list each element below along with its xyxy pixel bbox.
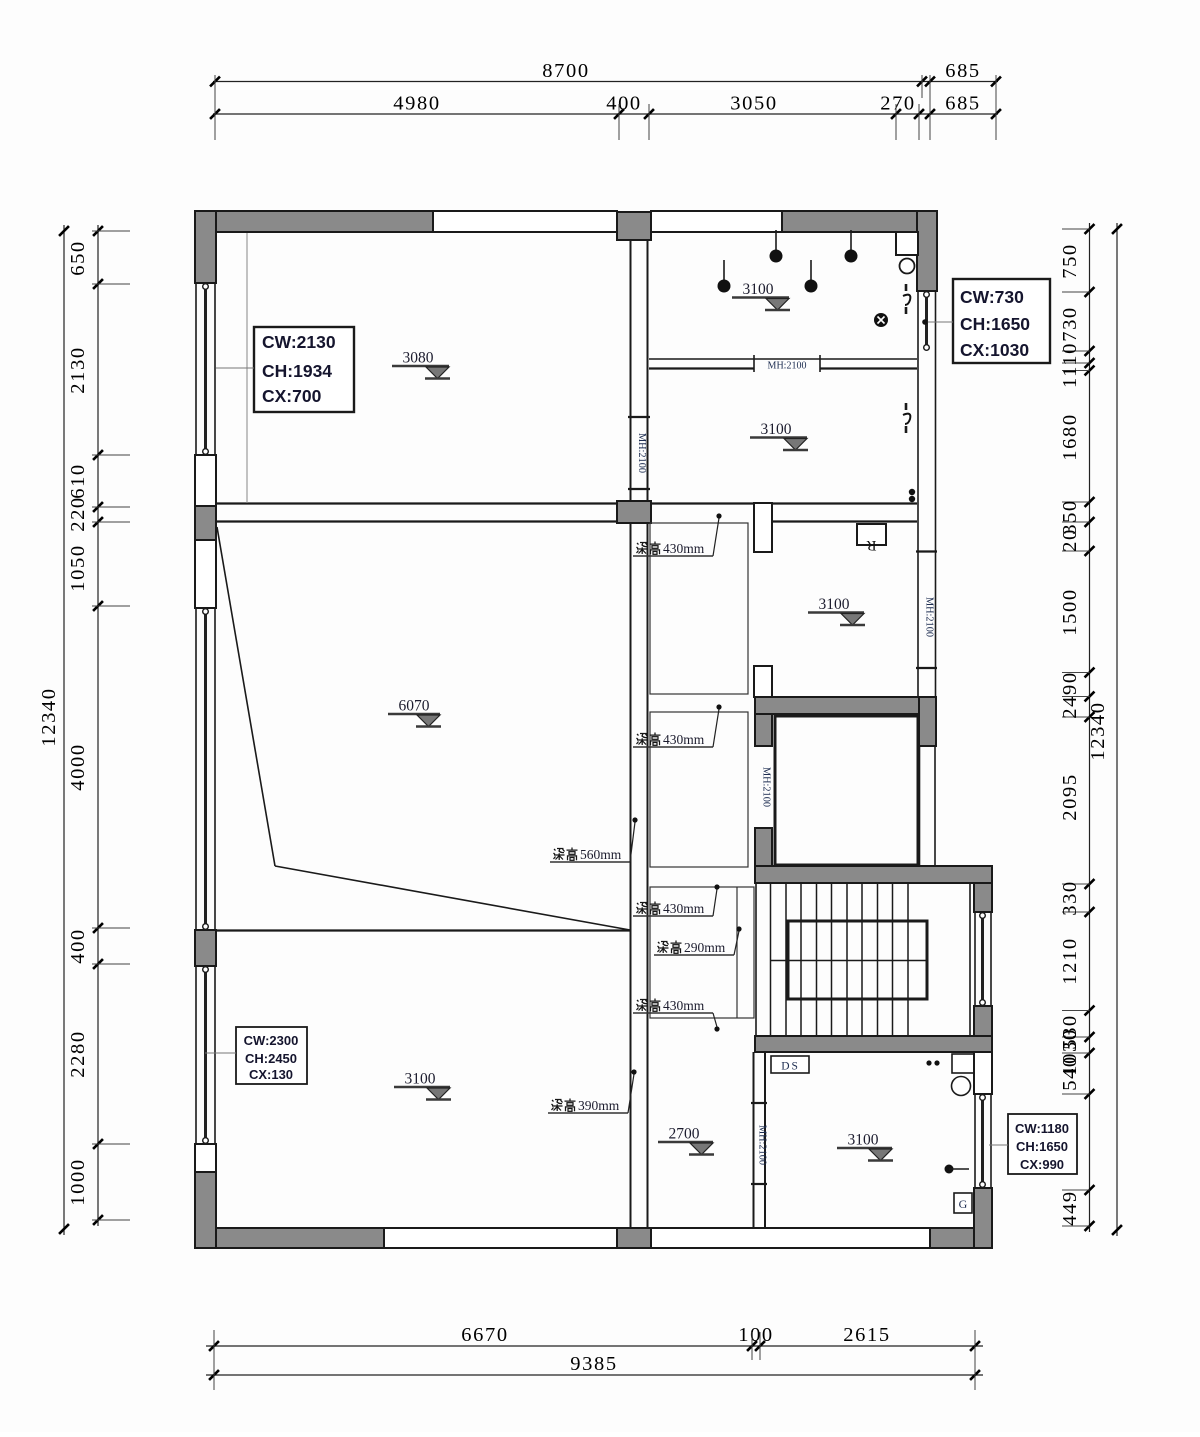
svg-text:MH:2100: MH:2100 [636, 433, 647, 473]
svg-text:CH:1934: CH:1934 [262, 361, 332, 381]
svg-text:430mm: 430mm [663, 732, 705, 747]
svg-text:CH:1650: CH:1650 [960, 314, 1030, 334]
svg-text:430mm: 430mm [663, 901, 705, 916]
svg-text:4000: 4000 [67, 743, 89, 790]
svg-text:730: 730 [1059, 306, 1081, 342]
svg-text:1050: 1050 [67, 544, 89, 591]
svg-text:3080: 3080 [403, 350, 434, 367]
svg-text:6070: 6070 [399, 698, 430, 715]
svg-text:CX:700: CX:700 [262, 386, 322, 406]
svg-text:S: S [792, 1061, 798, 1073]
svg-text:430mm: 430mm [663, 541, 705, 556]
svg-text:3100: 3100 [848, 1132, 879, 1149]
svg-text:290mm: 290mm [684, 940, 726, 955]
svg-text:540: 540 [1059, 1055, 1081, 1091]
svg-text:6670: 6670 [461, 1324, 508, 1346]
svg-text:2130: 2130 [67, 346, 89, 393]
svg-text:R: R [866, 537, 876, 553]
svg-text:400: 400 [606, 93, 642, 115]
svg-text:2615: 2615 [843, 1324, 890, 1346]
svg-text:400: 400 [67, 928, 89, 964]
svg-text:220: 220 [67, 496, 89, 532]
svg-text:685: 685 [945, 60, 981, 82]
svg-text:CW:1180: CW:1180 [1015, 1121, 1069, 1136]
svg-text:1210: 1210 [1059, 937, 1081, 984]
svg-text:12340: 12340 [1087, 701, 1109, 760]
svg-text:CH:2450: CH:2450 [245, 1051, 297, 1066]
svg-text:560mm: 560mm [580, 847, 622, 862]
svg-text:12340: 12340 [38, 687, 60, 746]
svg-text:MH:2100: MH:2100 [924, 597, 935, 637]
svg-text:330: 330 [1059, 880, 1081, 916]
svg-text:1110: 1110 [1059, 342, 1081, 388]
svg-text:1680: 1680 [1059, 413, 1081, 460]
svg-text:3100: 3100 [761, 421, 792, 438]
svg-text:430mm: 430mm [663, 998, 705, 1013]
svg-text:CW:2300: CW:2300 [244, 1033, 299, 1048]
svg-text:650: 650 [67, 240, 89, 276]
svg-text:3100: 3100 [405, 1071, 436, 1088]
svg-text:MH:2100: MH:2100 [757, 1125, 768, 1165]
svg-text:9385: 9385 [570, 1353, 617, 1375]
svg-text:3100: 3100 [819, 596, 850, 613]
svg-text:3050: 3050 [730, 93, 777, 115]
svg-text:CW:730: CW:730 [960, 287, 1024, 307]
svg-text:270: 270 [880, 93, 916, 115]
svg-text:CX:990: CX:990 [1020, 1157, 1064, 1172]
svg-text:MH:2100: MH:2100 [768, 361, 807, 372]
svg-text:1000: 1000 [67, 1158, 89, 1205]
svg-text:449: 449 [1059, 1190, 1081, 1226]
svg-text:685: 685 [945, 93, 981, 115]
svg-text:CH:1650: CH:1650 [1016, 1139, 1068, 1154]
svg-text:2700: 2700 [669, 1126, 700, 1143]
svg-text:CW:2130: CW:2130 [262, 332, 336, 352]
svg-text:3100: 3100 [743, 281, 774, 298]
svg-text:2490: 2490 [1059, 671, 1081, 718]
svg-text:MH:2100: MH:2100 [761, 767, 772, 807]
svg-text:100: 100 [738, 1324, 774, 1346]
svg-text:390mm: 390mm [578, 1098, 620, 1113]
svg-text:CX:1030: CX:1030 [960, 340, 1029, 360]
svg-text:750: 750 [1059, 243, 1081, 279]
svg-text:8700: 8700 [542, 60, 589, 82]
svg-text:CX:130: CX:130 [249, 1067, 293, 1082]
svg-text:4980: 4980 [393, 93, 440, 115]
svg-text:20: 20 [1059, 528, 1081, 552]
svg-text:G: G [959, 1197, 968, 1211]
svg-text:2095: 2095 [1059, 773, 1081, 820]
svg-text:610: 610 [67, 463, 89, 499]
svg-text:D: D [781, 1061, 789, 1073]
svg-text:2280: 2280 [67, 1030, 89, 1077]
svg-text:1500: 1500 [1059, 588, 1081, 635]
